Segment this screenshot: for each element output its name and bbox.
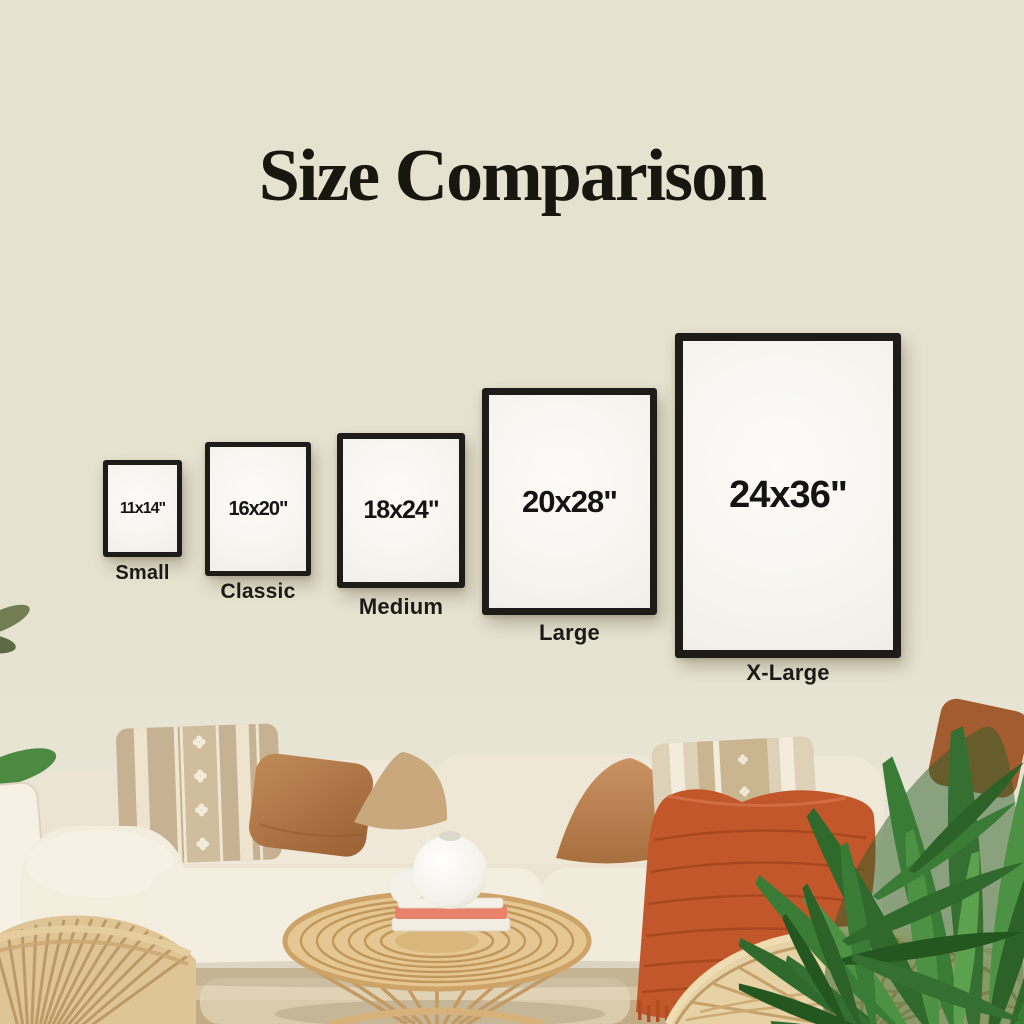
frame-label-medium: Medium bbox=[337, 594, 465, 620]
size-comparison-graphic: Size Comparison 11x14" Small 16x20" Clas… bbox=[0, 0, 1024, 1024]
frame-size-text: 16x20" bbox=[228, 498, 287, 521]
size-frame-medium: 18x24" bbox=[337, 433, 465, 588]
frame-label-xlarge: X-Large bbox=[675, 660, 901, 686]
frame-size-text: 11x14" bbox=[120, 500, 165, 518]
frame-label-small: Small bbox=[103, 562, 182, 585]
size-frame-classic: 16x20" bbox=[205, 442, 311, 576]
frame-size-text: 20x28" bbox=[522, 484, 617, 520]
frame-size-text: 18x24" bbox=[363, 496, 438, 525]
page-title: Size Comparison bbox=[0, 134, 1024, 219]
size-frame-large: 20x28" bbox=[482, 388, 657, 615]
size-frame-xlarge: 24x36" bbox=[675, 333, 901, 658]
pillow-rust bbox=[247, 751, 376, 859]
frame-label-large: Large bbox=[482, 620, 657, 646]
frame-size-text: 24x36" bbox=[729, 474, 847, 517]
frame-label-classic: Classic bbox=[205, 580, 311, 604]
size-frame-small: 11x14" bbox=[103, 460, 182, 557]
